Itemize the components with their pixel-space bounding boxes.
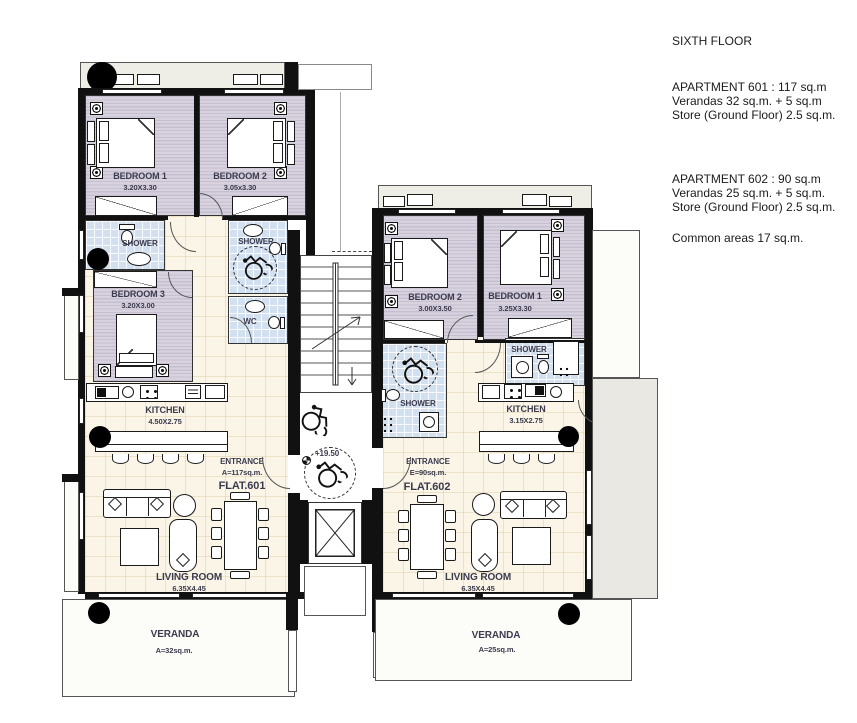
toilet-icon	[386, 389, 400, 401]
kitchen-cabinet	[482, 385, 500, 399]
apt602-line1: APARTMENT 602 : 90 sq.m	[672, 172, 835, 186]
shaft-outline	[298, 64, 372, 90]
column-marker	[89, 426, 111, 448]
sliding-door	[98, 593, 180, 598]
kitchen-island	[95, 431, 228, 452]
flat601-veranda-label: VERANDA	[151, 630, 200, 640]
wall	[222, 216, 306, 220]
stove-burners	[504, 384, 522, 399]
bed-headboard	[287, 121, 295, 142]
bar-stool	[488, 454, 505, 464]
flat602-number-label: FLAT.602	[404, 482, 451, 493]
toilet-icon	[268, 316, 280, 329]
flat602-entrance-area: E=90sq.m.	[410, 469, 446, 477]
wall-pier	[62, 288, 79, 296]
dining-table	[224, 501, 257, 570]
ac-unit	[407, 194, 433, 206]
window	[502, 209, 560, 214]
stove-burners	[140, 385, 158, 399]
dining-chair	[230, 571, 250, 579]
dining-chair	[211, 546, 222, 559]
apt601-line2: Verandas 32 sq.m. + 5 sq.m	[672, 94, 835, 108]
dining-chair	[445, 529, 456, 542]
washbasin-icon	[243, 224, 263, 237]
bed	[96, 118, 155, 168]
bar-stool	[137, 454, 154, 464]
coffee-table	[120, 528, 159, 566]
elevator-car	[315, 509, 355, 557]
pillow	[273, 143, 283, 163]
chaise-chair	[169, 519, 197, 572]
column-marker	[558, 426, 579, 447]
pillow	[394, 262, 403, 281]
dining-chair	[398, 529, 409, 542]
chaise-chair	[471, 519, 498, 572]
dining-chair	[417, 571, 437, 579]
spotlight-icon	[385, 222, 398, 235]
window	[79, 230, 84, 260]
bed-headboard	[553, 259, 560, 279]
apartment-601-info: APARTMENT 601 : 117 sq.m Verandas 32 sq.…	[672, 80, 835, 122]
shaft-below	[304, 566, 366, 616]
pillow	[273, 121, 283, 141]
toilet-tank	[280, 317, 285, 329]
column-marker	[87, 248, 109, 270]
kitchen-cabinet	[205, 385, 225, 399]
chaise-pillow	[478, 553, 492, 567]
toilet-icon	[269, 242, 281, 255]
side-table	[472, 493, 495, 516]
flat602-living-dims: 6.35X4.45	[461, 585, 494, 593]
pillow	[394, 241, 403, 260]
bed-headboard	[553, 237, 560, 257]
side-balcony	[592, 230, 640, 378]
bar-stool	[162, 454, 179, 464]
wardrobe	[94, 271, 157, 288]
ac-unit	[549, 196, 572, 207]
pier-strip	[288, 630, 297, 692]
flat601-living-dims: 6.35X4.45	[172, 585, 205, 593]
flat601-bedroom3-label: BEDROOM 3	[111, 290, 165, 299]
bar-stool	[187, 454, 204, 464]
side-balcony	[64, 290, 79, 380]
flat601-kitchen-dims: 4.50X2.75	[148, 418, 181, 426]
flat602-veranda-area: A=25sq.m.	[479, 646, 516, 654]
window	[398, 209, 456, 214]
flat601-shower1-label: SHOWER	[122, 240, 157, 248]
bed	[116, 314, 157, 366]
bed-headboard	[384, 243, 391, 263]
core-dashed-line	[332, 251, 372, 252]
dining-chair	[258, 527, 269, 540]
dining-chair	[398, 510, 409, 523]
wall	[85, 216, 168, 220]
wall	[372, 208, 383, 448]
wall-pier	[298, 500, 308, 564]
ac-unit	[233, 74, 258, 85]
washbasin-icon	[127, 252, 151, 266]
side-balcony	[64, 478, 79, 592]
flat602-kitchen-label: KITCHEN	[506, 405, 545, 414]
spotlight-icon	[551, 219, 564, 232]
column-marker	[88, 602, 110, 624]
dining-chair	[258, 546, 269, 559]
sink-basin	[97, 388, 106, 397]
dining-chair	[211, 527, 222, 540]
flat602-bedroom2-dims: 3.00X3.50	[418, 305, 451, 313]
toilet-tank	[281, 243, 286, 255]
ac-unit	[383, 196, 405, 207]
wall-pier	[362, 500, 372, 564]
window	[102, 89, 162, 94]
flat601-bedroom1-label: BEDROOM 1	[113, 172, 167, 181]
washbasin-icon	[516, 361, 529, 374]
spotlight-icon	[98, 364, 111, 377]
bed	[500, 230, 552, 285]
drain-marks	[382, 416, 394, 432]
washbasin-icon	[423, 416, 435, 428]
bed-headboard	[384, 265, 391, 285]
bed-fold	[431, 239, 447, 255]
dining-chair	[417, 495, 437, 503]
island-edge	[96, 444, 227, 445]
pillow	[540, 257, 549, 277]
apartment-602-info: APARTMENT 602 : 90 sq.m Verandas 25 sq.m…	[672, 172, 835, 214]
washbasin-unit	[511, 356, 533, 378]
spotlight-icon	[156, 364, 169, 377]
sliding-door	[192, 593, 287, 598]
ac-unit	[137, 74, 160, 85]
bed-headboard	[287, 144, 295, 165]
wall	[478, 215, 483, 337]
kitchen-sink	[525, 384, 546, 397]
flat601-bedroom3-dims: 3.20X3.00	[121, 302, 154, 310]
window	[79, 295, 84, 333]
apt602-line3: Store (Ground Floor) 2.5 sq.m.	[672, 200, 835, 214]
pillow	[99, 143, 109, 163]
wheelchair-icon	[297, 401, 335, 437]
sliding-door	[392, 593, 476, 598]
flat601-veranda-area: A=32sq.m.	[156, 647, 193, 655]
kitchen-grill	[185, 385, 201, 399]
side-balcony	[592, 378, 658, 599]
bed	[391, 238, 448, 288]
flat601-shower2-label: SHOWER	[238, 238, 273, 246]
flat602-shower-left-label: SHOWER	[400, 400, 435, 408]
sofa-cushion-line	[148, 497, 149, 516]
floor-plan-sheet: BEDROOM 1 3.20X3.30 BEDROOM 2 3.05x3.30 …	[0, 0, 857, 723]
bed-fold	[501, 231, 517, 247]
island-edge	[480, 444, 573, 445]
spotlight-icon	[551, 288, 564, 301]
wall	[306, 88, 315, 255]
toilet-tank	[537, 354, 549, 359]
kitchen-hob-round	[550, 386, 562, 398]
washbasin-unit	[419, 412, 439, 432]
flat601-bedroom2-label: BEDROOM 2	[213, 172, 267, 181]
pillow	[540, 234, 549, 254]
sink-basin	[535, 386, 544, 395]
ac-unit	[522, 194, 547, 206]
sofa-pillow	[108, 497, 122, 511]
apt601-line3: Store (Ground Floor) 2.5 sq.m.	[672, 108, 835, 122]
bed	[227, 118, 286, 168]
wardrobe	[384, 320, 444, 339]
bed-fold	[228, 119, 244, 135]
flat602-bedroom1-label: BEDROOM 1	[488, 292, 542, 301]
wall-pier	[286, 592, 298, 630]
spotlight-icon	[90, 102, 103, 115]
flat601-kitchen-label: KITCHEN	[145, 406, 184, 415]
ac-unit	[260, 74, 283, 85]
wardrobe	[95, 196, 157, 216]
spotlight-icon	[385, 295, 398, 308]
dining-chair	[445, 510, 456, 523]
spotlight-icon	[274, 102, 287, 115]
flat601-living-label: LIVING ROOM	[156, 573, 222, 583]
flat602-shower-right-label: SHOWER	[511, 346, 546, 354]
flat602-kitchen-dims: 3.15X2.75	[509, 417, 542, 425]
sofa-pillow	[505, 499, 519, 513]
bed-headboard	[87, 144, 95, 165]
bed-fold	[138, 119, 154, 135]
bar-stool	[538, 454, 555, 464]
column-marker	[558, 603, 580, 625]
side-table	[173, 494, 196, 517]
window	[79, 398, 84, 424]
apt602-line2: Verandas 25 sq.m. + 5 sq.m.	[672, 186, 835, 200]
wall-pier	[62, 474, 79, 482]
pillow	[99, 121, 109, 141]
floor-title: SIXTH FLOOR	[672, 34, 752, 48]
kitchen-hob-round	[122, 386, 134, 398]
flat602-entrance-label: ENTRANCE	[406, 458, 450, 466]
flat601-bedroom2-dims: 3.05x3.30	[224, 184, 256, 192]
bed-headboard	[87, 121, 95, 142]
flat602-bedroom1-dims: 3.25X3.30	[498, 305, 531, 313]
window	[224, 89, 284, 94]
pillow	[119, 353, 154, 363]
washbasin-icon	[245, 300, 265, 313]
dining-chair	[211, 508, 222, 521]
kitchen-sink	[95, 386, 119, 399]
wardrobe	[508, 318, 572, 338]
dining-chair	[445, 548, 456, 561]
wall	[383, 340, 445, 343]
sofa-cushion-line	[126, 497, 127, 516]
flat602-veranda-label: VERANDA	[472, 631, 521, 641]
sofa-pillow	[546, 499, 560, 513]
sofa-cushion-line	[523, 499, 524, 517]
drain-marks	[558, 366, 570, 377]
flat601-number-label: FLAT.601	[219, 481, 266, 492]
coffee-table	[512, 527, 551, 565]
flat601-bedroom1-dims: 3.20X3.30	[123, 184, 156, 192]
flat601-entrance-area: A=117sq.m.	[222, 469, 263, 477]
dining-chair	[258, 508, 269, 521]
dining-chair	[398, 548, 409, 561]
toilet-icon	[538, 360, 549, 374]
sofa	[103, 489, 171, 518]
sofa	[500, 491, 567, 519]
sofa-cushion-line	[545, 499, 546, 517]
common-areas-info: Common areas 17 sq.m.	[672, 231, 803, 245]
dining-table	[410, 504, 444, 570]
sofa-pillow	[150, 497, 164, 511]
staircase	[300, 255, 372, 393]
bar-stool	[513, 454, 530, 464]
chaise-pillow	[176, 553, 190, 567]
wall	[372, 488, 383, 594]
bar-stool	[112, 454, 129, 464]
flat602-living-label: LIVING ROOM	[445, 573, 511, 583]
wardrobe	[232, 196, 288, 216]
apt601-line1: APARTMENT 601 : 117 sq.m	[672, 80, 835, 94]
flat602-bedroom2-label: BEDROOM 2	[408, 293, 462, 302]
shaft-line	[340, 92, 341, 252]
sliding-door	[482, 593, 574, 598]
flat601-entrance-label: ENTRANCE	[220, 458, 264, 466]
window	[79, 492, 84, 540]
dining-chair	[230, 492, 250, 500]
nightstand	[115, 366, 153, 378]
